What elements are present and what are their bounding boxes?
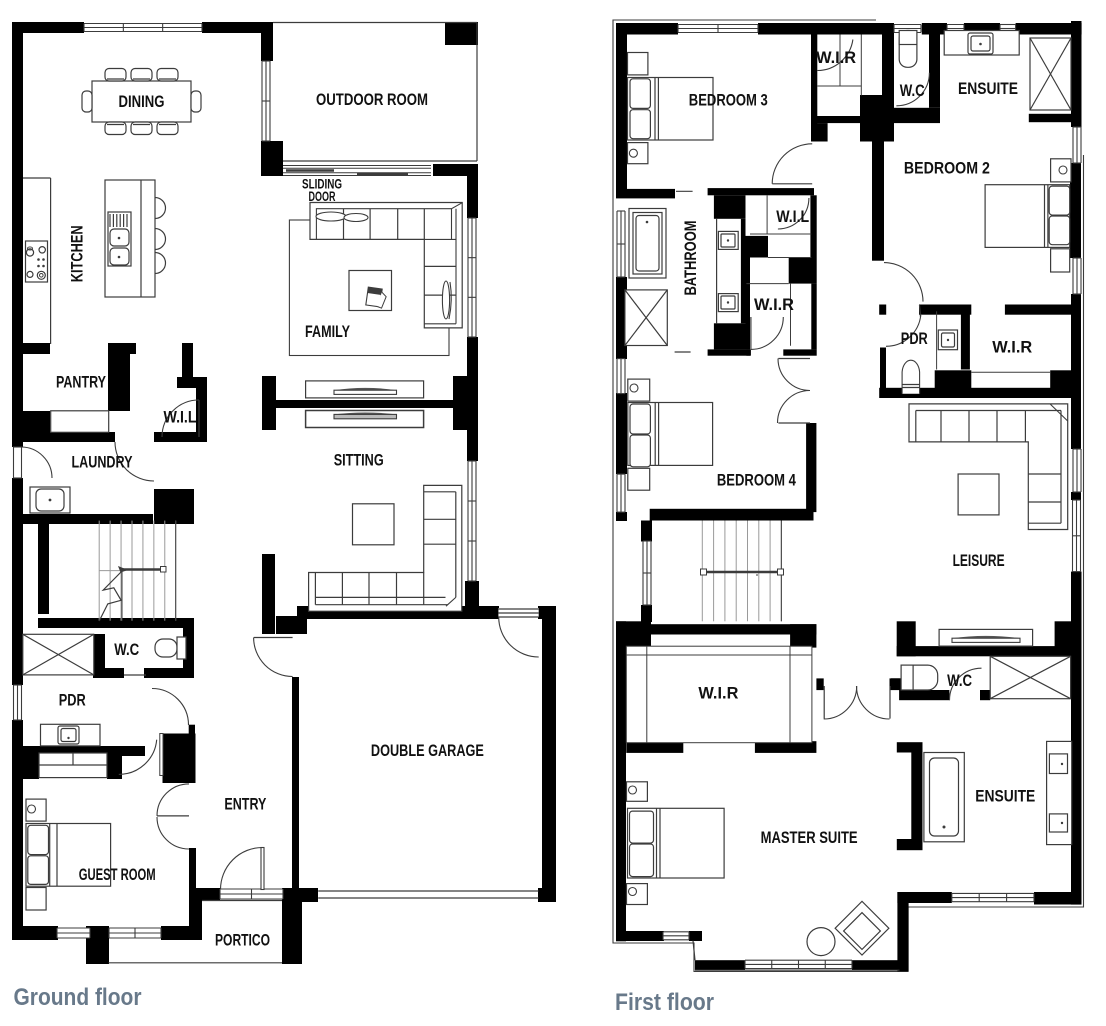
svg-text:W.C: W.C (114, 640, 139, 659)
svg-text:W.I.L: W.I.L (164, 408, 197, 427)
svg-text:FAMILY: FAMILY (305, 322, 350, 341)
svg-text:KITCHEN: KITCHEN (67, 225, 86, 282)
svg-text:DOUBLE GARAGE: DOUBLE GARAGE (371, 741, 484, 760)
svg-text:LAUNDRY: LAUNDRY (72, 453, 133, 472)
svg-text:ENSUITE: ENSUITE (975, 786, 1035, 805)
svg-text:PANTRY: PANTRY (56, 373, 106, 392)
svg-text:PDR: PDR (59, 691, 86, 710)
svg-text:W.I.R: W.I.R (992, 337, 1032, 356)
svg-text:DINING: DINING (119, 92, 165, 111)
svg-text:BEDROOM 4: BEDROOM 4 (717, 471, 796, 490)
svg-text:W.I.L: W.I.L (776, 207, 809, 226)
svg-text:W.I.R: W.I.R (816, 48, 856, 67)
svg-text:BATHROOM: BATHROOM (681, 221, 700, 296)
svg-text:DOOR: DOOR (309, 189, 336, 204)
svg-text:PDR: PDR (901, 329, 928, 348)
svg-text:ENSUITE: ENSUITE (958, 79, 1018, 98)
svg-text:Ground floor: Ground floor (14, 984, 142, 1011)
svg-text:GUEST ROOM: GUEST ROOM (79, 865, 156, 884)
svg-text:ENTRY: ENTRY (224, 795, 266, 814)
svg-text:MASTER SUITE: MASTER SUITE (761, 828, 858, 847)
svg-text:W.I.R: W.I.R (754, 295, 794, 314)
svg-text:W.C: W.C (947, 671, 972, 690)
svg-text:OUTDOOR ROOM: OUTDOOR ROOM (316, 90, 428, 109)
svg-text:SITTING: SITTING (334, 451, 384, 470)
svg-text:BEDROOM 3: BEDROOM 3 (689, 91, 768, 110)
svg-text:W.I.R: W.I.R (698, 684, 738, 703)
svg-text:First floor: First floor (615, 989, 714, 1016)
svg-text:PORTICO: PORTICO (215, 931, 270, 950)
svg-text:LEISURE: LEISURE (953, 551, 1005, 570)
svg-text:BEDROOM 2: BEDROOM 2 (904, 158, 990, 177)
svg-text:W.C: W.C (900, 81, 925, 100)
